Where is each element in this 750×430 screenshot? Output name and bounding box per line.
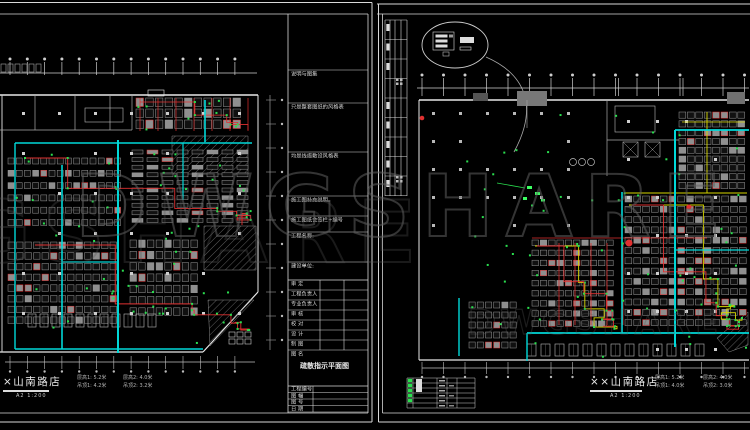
titleblock-owner-label: 建设单位:: [291, 264, 314, 269]
right-floor-height-note: 层高1: 5.2米: [655, 376, 684, 381]
titleblock-sign-row: 校 对: [291, 322, 303, 327]
left-floor-height-note-2: 层高2: 4.0米: [123, 376, 152, 381]
titleblock-sign-row: 工程负责人: [291, 292, 317, 297]
right-sheet-canvas[interactable]: [377, 0, 750, 430]
titleblock-note-5: 施工图纸会签栏+编号: [291, 218, 343, 223]
titleblock-sign-row: 审 定: [291, 282, 303, 287]
left-title-underline: [3, 390, 49, 392]
titleblock-footer-row: 图 号: [291, 400, 303, 405]
titleblock-note-1: 说明与图集: [291, 72, 317, 77]
titleblock-sign-row: 制 图: [291, 342, 303, 347]
titleblock-note-3: 均是线缆敷设风格表: [291, 154, 339, 159]
left-ceiling-height-note-2: 吊顶2: 3.2米: [123, 384, 152, 389]
titleblock-sign-row: 专业负责人: [291, 302, 317, 307]
left-ceiling-height-note: 吊顶1: 4.2米: [77, 384, 106, 389]
titleblock-name-label: 图 名: [291, 352, 303, 357]
titleblock-note-2: 只是整套图纸的风格表: [291, 105, 344, 110]
cad-viewport: 说明与图集 只是整套图纸的风格表 均是线缆敷设风格表 施工图补充说明。 施工图纸…: [0, 0, 750, 430]
right-title-underline: [590, 390, 642, 392]
titleblock-sign-row: 审 核: [291, 312, 303, 317]
right-floor-height-note-2: 层高2: 4.0米: [703, 376, 732, 381]
left-sheet-scale: A2 1:200: [16, 394, 47, 399]
titleblock-sign-row: 设 计: [291, 332, 303, 337]
titleblock-footer-row: 工程编号: [291, 387, 312, 392]
titleblock-footer-row: 图 幅: [291, 394, 303, 399]
left-sheet-title: ×山南路店: [3, 377, 61, 388]
left-floor-height-note: 层高1: 5.2米: [77, 376, 106, 381]
right-ceiling-height-note: 吊顶1: 4.0米: [655, 384, 684, 389]
right-ceiling-height-note-2: 吊顶2: 3.0米: [703, 384, 732, 389]
titleblock-footer-row: 日 期: [291, 407, 303, 412]
titleblock-project-label: 工程名称:: [291, 234, 314, 239]
titleblock-drawing-name: 疏散指示平面图: [300, 363, 349, 370]
right-sheet-scale: A2 1:200: [610, 394, 641, 399]
titleblock-note-4: 施工图补充说明。: [291, 198, 333, 203]
right-sheet-title: ××山南路店: [590, 377, 659, 388]
